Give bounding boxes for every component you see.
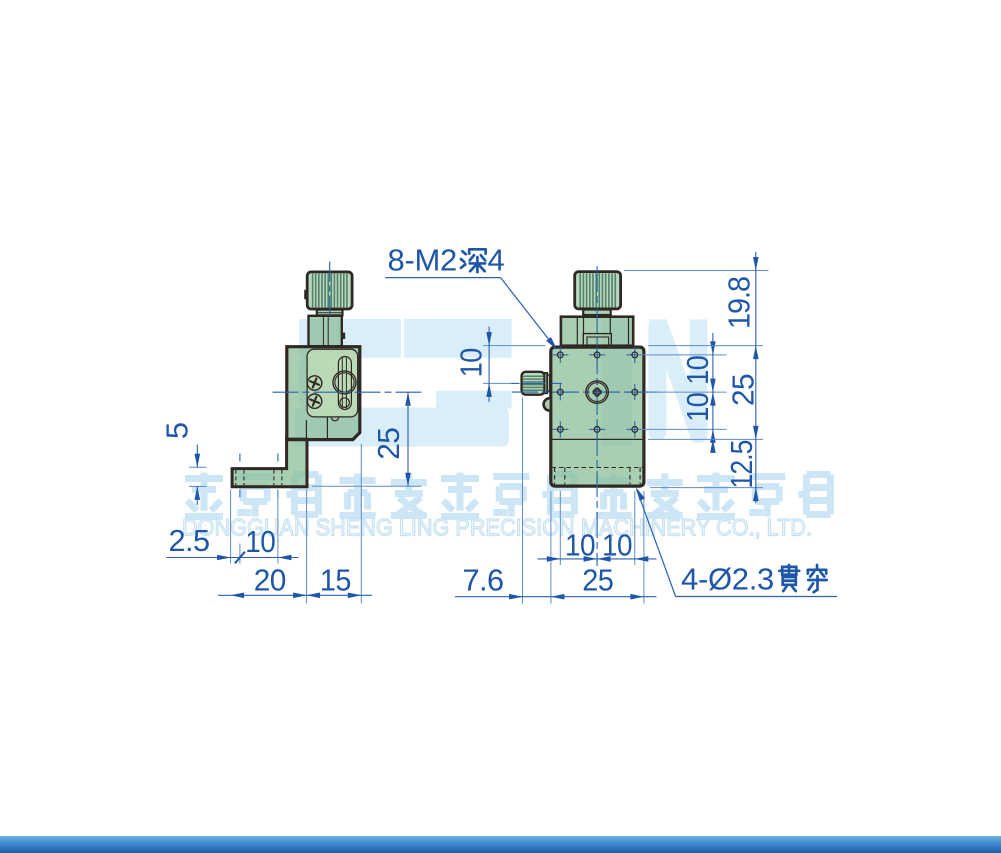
svg-text:4-Ø2.3: 4-Ø2.3	[681, 562, 774, 597]
svg-text:25: 25	[582, 562, 613, 597]
svg-text:4: 4	[488, 243, 505, 278]
svg-text:7.6: 7.6	[463, 563, 504, 598]
svg-text:5: 5	[159, 422, 194, 439]
svg-text:10: 10	[565, 528, 595, 563]
svg-text:8-M2: 8-M2	[388, 243, 457, 278]
svg-text:10: 10	[680, 355, 715, 384]
svg-text:25: 25	[371, 428, 406, 460]
svg-text:10: 10	[245, 524, 275, 559]
svg-text:25: 25	[725, 374, 760, 406]
svg-text:10: 10	[602, 528, 632, 563]
svg-text:20: 20	[254, 562, 286, 597]
svg-text:15: 15	[320, 562, 351, 597]
svg-text:19.8: 19.8	[721, 277, 756, 329]
svg-text:10: 10	[680, 392, 715, 421]
svg-text:DONGGUAN SHENG LING PRECISION: DONGGUAN SHENG LING PRECISION MACHINERY …	[182, 515, 812, 542]
svg-text:12.5: 12.5	[724, 441, 759, 489]
svg-text:10: 10	[454, 348, 489, 377]
svg-text:2.5: 2.5	[169, 523, 210, 558]
